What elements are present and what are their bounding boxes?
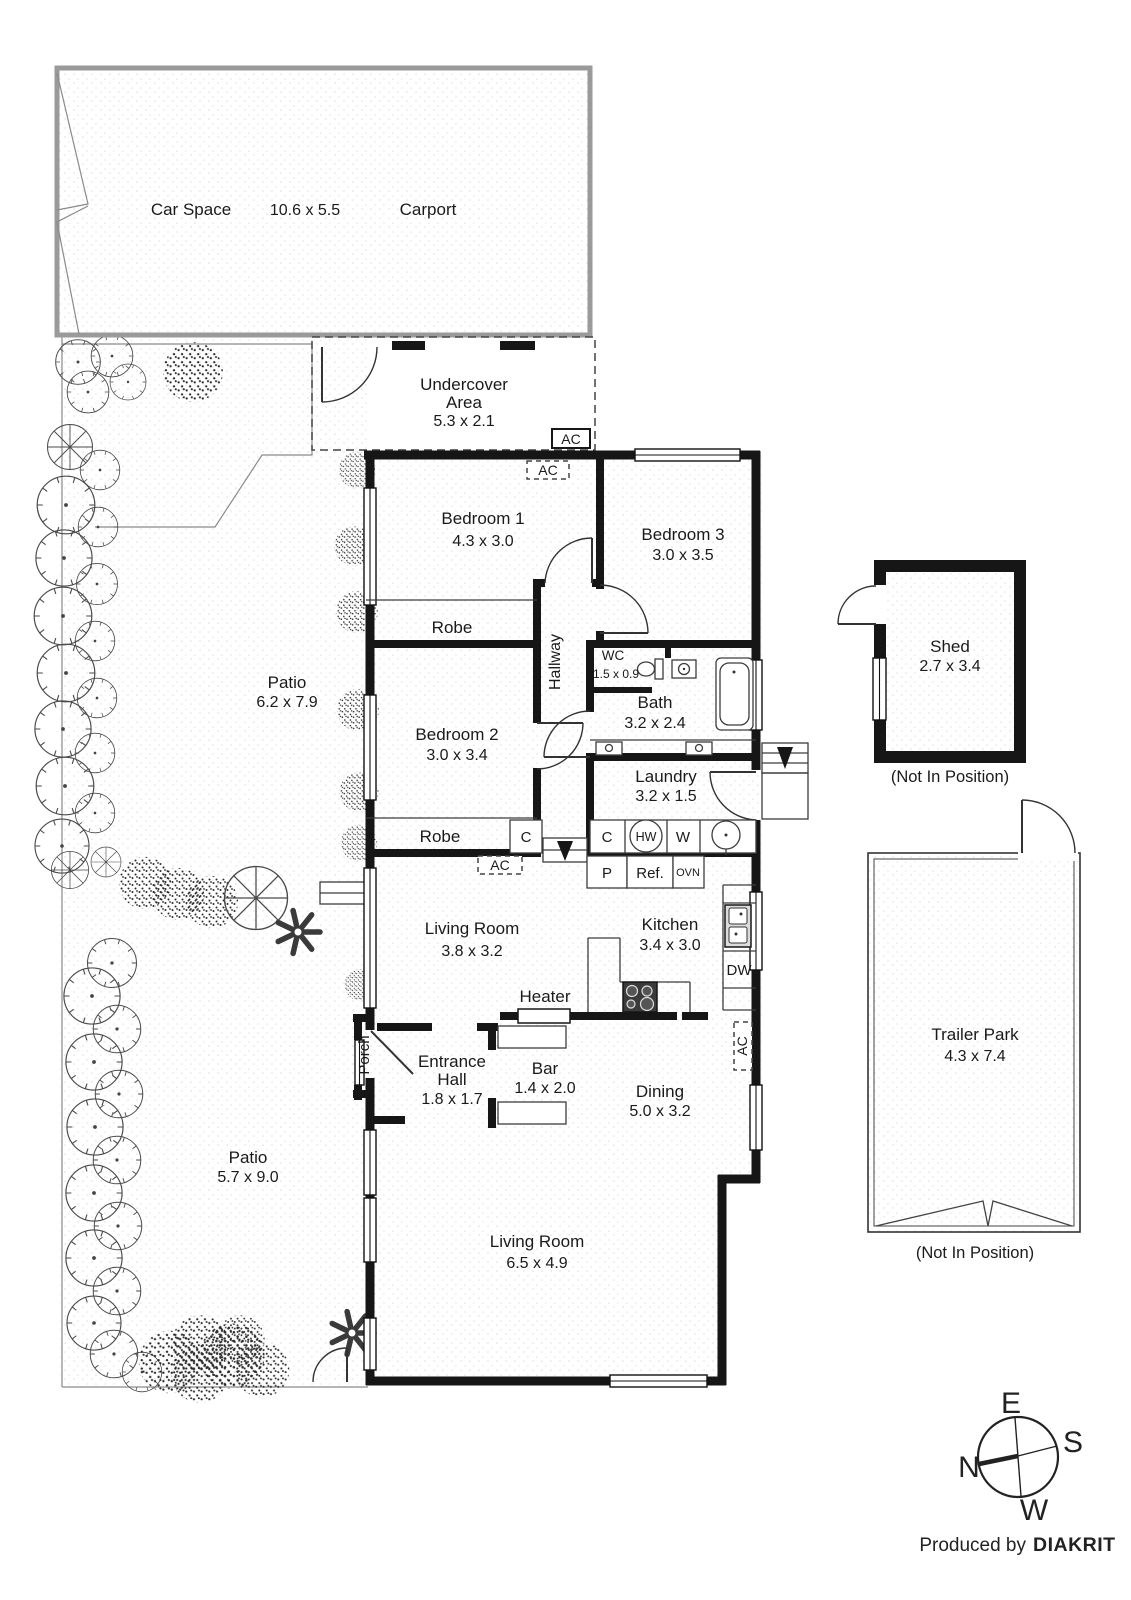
laundry-label: Laundry bbox=[635, 767, 697, 786]
patio-upper-label: Patio bbox=[268, 673, 307, 692]
kitchen-sink bbox=[725, 905, 751, 947]
trailer-dims: 4.3 x 7.4 bbox=[944, 1048, 1005, 1065]
window-living2-a bbox=[364, 1130, 376, 1195]
window-bed3 bbox=[635, 449, 740, 461]
trailer-note: (Not In Position) bbox=[916, 1244, 1034, 1262]
entrance-dims: 1.8 x 1.7 bbox=[421, 1091, 482, 1108]
window-living2-b bbox=[364, 1198, 376, 1262]
fridge-label: Ref. bbox=[636, 865, 664, 882]
footer-prefix: Produced by bbox=[919, 1535, 1026, 1556]
footer: Produced by DIAKRIT bbox=[919, 1534, 1115, 1556]
oven-label: OVN bbox=[676, 867, 700, 879]
car-space-label: Car Space bbox=[151, 200, 231, 219]
compass-south: S bbox=[1063, 1426, 1083, 1459]
ac-exterior-label: AC bbox=[561, 431, 580, 447]
living1-dims: 3.8 x 3.2 bbox=[441, 943, 502, 960]
patio-lower-label: Patio bbox=[229, 1148, 268, 1167]
wc-label: WC bbox=[602, 648, 625, 663]
bed1-label: Bedroom 1 bbox=[441, 509, 524, 528]
bed2-label: Bedroom 2 bbox=[415, 725, 498, 744]
floorplan-page: Patio 6.2 x 7.9 Patio 5.7 x 9.0 Car Spac… bbox=[0, 0, 1131, 1600]
kitchen-dims: 3.4 x 3.0 bbox=[639, 937, 700, 954]
bed3-dims: 3.0 x 3.5 bbox=[652, 547, 713, 564]
dining-dims: 5.0 x 3.2 bbox=[629, 1103, 690, 1120]
window-living2-c bbox=[364, 1318, 376, 1370]
pantry-label: P bbox=[602, 865, 612, 882]
entrance-label-2: Hall bbox=[437, 1070, 466, 1089]
compass-west: W bbox=[1020, 1494, 1049, 1527]
hallway-label: Hallway bbox=[547, 634, 564, 690]
shed-note: (Not In Position) bbox=[891, 768, 1009, 786]
window-living1 bbox=[364, 868, 376, 1008]
window-dining bbox=[750, 1085, 762, 1150]
trailer-label: Trailer Park bbox=[931, 1025, 1019, 1044]
bed3-label: Bedroom 3 bbox=[641, 525, 724, 544]
robe2-label: Robe bbox=[420, 827, 461, 846]
living2-label: Living Room bbox=[490, 1232, 585, 1251]
window-bed2 bbox=[364, 695, 376, 800]
car-space-dims: 10.6 x 5.5 bbox=[270, 202, 340, 219]
compass-icon: E S N W bbox=[958, 1387, 1083, 1527]
shed-label: Shed bbox=[930, 637, 970, 656]
bath-basin bbox=[672, 660, 696, 678]
bar-label: Bar bbox=[532, 1059, 559, 1078]
window-living2-south bbox=[610, 1375, 707, 1387]
heater-unit bbox=[518, 1009, 570, 1023]
bar-dims: 1.4 x 2.0 bbox=[514, 1080, 575, 1097]
laundry-bench bbox=[590, 820, 756, 855]
compass-north: N bbox=[958, 1451, 980, 1484]
ac-dining-label: AC bbox=[734, 1036, 750, 1055]
hot-water-label: HW bbox=[636, 830, 657, 844]
laundry-landing bbox=[762, 743, 808, 819]
living2-dims: 6.5 x 4.9 bbox=[506, 1255, 567, 1272]
heater-label: Heater bbox=[519, 987, 570, 1006]
entrance-label-1: Entrance bbox=[418, 1052, 486, 1071]
bed1-dims: 4.3 x 3.0 bbox=[452, 533, 513, 550]
wc-dims: 1.5 x 0.9 bbox=[593, 667, 639, 681]
shed-door-opening bbox=[871, 585, 887, 624]
floor-plan: Patio 6.2 x 7.9 Patio 5.7 x 9.0 Car Spac… bbox=[0, 0, 1131, 1600]
shed-door-swing bbox=[838, 586, 876, 624]
laundry-dims: 3.2 x 1.5 bbox=[635, 788, 696, 805]
cooktop bbox=[623, 982, 657, 1012]
bathtub bbox=[716, 658, 753, 730]
shed: Shed 2.7 x 3.4 (Not In Position) bbox=[838, 566, 1020, 786]
undercover-label-1: Undercover bbox=[420, 375, 508, 394]
window-shed bbox=[873, 658, 886, 720]
undercover-dims: 5.3 x 2.1 bbox=[433, 413, 494, 430]
dishwasher-label: DW bbox=[727, 962, 753, 979]
cupboard-hall-label: C bbox=[521, 829, 532, 846]
porch-label: Porch bbox=[356, 1035, 373, 1074]
patio-lower-dims: 5.7 x 9.0 bbox=[217, 1169, 278, 1186]
dining-label: Dining bbox=[636, 1082, 684, 1101]
bath-label: Bath bbox=[638, 693, 673, 712]
trailer-park: Trailer Park 4.3 x 7.4 (Not In Position) bbox=[868, 800, 1080, 1262]
carport-label: Carport bbox=[400, 200, 457, 219]
robe1-label: Robe bbox=[432, 618, 473, 637]
trailer-gate-swing bbox=[1022, 800, 1075, 853]
compass-east: E bbox=[1001, 1387, 1021, 1420]
ac-living-label: AC bbox=[490, 857, 509, 873]
shed-dims: 2.7 x 3.4 bbox=[919, 658, 980, 675]
trailer-gate-opening bbox=[1018, 849, 1078, 861]
window-kitchen bbox=[750, 892, 762, 970]
garden: Patio 6.2 x 7.9 Patio 5.7 x 9.0 bbox=[34, 335, 379, 1403]
footer-brand: DIAKRIT bbox=[1033, 1534, 1116, 1556]
washer-label: W bbox=[676, 829, 691, 846]
kitchen-label: Kitchen bbox=[642, 915, 699, 934]
living1-label: Living Room bbox=[425, 919, 520, 938]
ac-bed1-label: AC bbox=[538, 462, 557, 478]
bath-dims: 3.2 x 2.4 bbox=[624, 715, 685, 732]
window-bed1 bbox=[364, 488, 376, 605]
undercover-label-2: Area bbox=[446, 393, 482, 412]
cupboard-laundry-label: C bbox=[602, 829, 613, 846]
bed2-dims: 3.0 x 3.4 bbox=[426, 747, 487, 764]
compass-north-pointer bbox=[979, 1456, 1018, 1464]
carport: Car Space 10.6 x 5.5 Carport bbox=[57, 68, 590, 335]
patio-upper-dims: 6.2 x 7.9 bbox=[256, 694, 317, 711]
hall-step bbox=[543, 838, 587, 862]
